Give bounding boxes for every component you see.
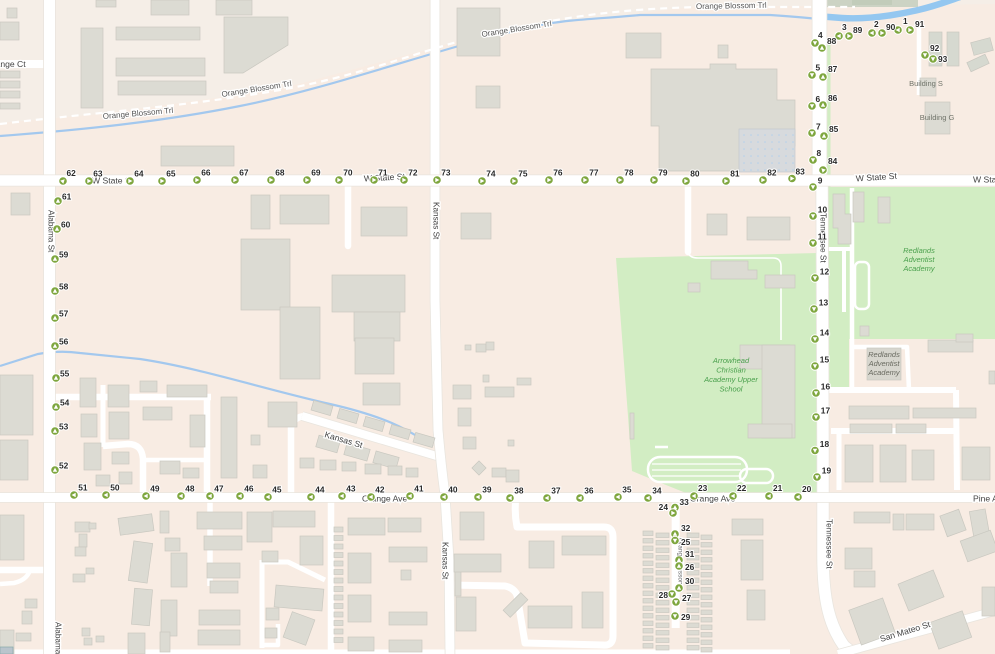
svg-text:92: 92 [930,43,940,53]
svg-text:63: 63 [93,169,103,179]
svg-text:77: 77 [589,168,599,178]
svg-text:42: 42 [375,485,385,495]
svg-text:24: 24 [659,502,669,512]
svg-text:57: 57 [59,309,69,319]
svg-text:44: 44 [315,485,325,495]
svg-text:72: 72 [408,168,418,178]
svg-text:46: 46 [244,484,254,494]
svg-text:86: 86 [828,93,838,103]
svg-text:79: 79 [658,168,668,178]
svg-text:47: 47 [214,484,224,494]
svg-text:Redlands: Redlands [868,350,900,359]
svg-text:54: 54 [60,398,70,408]
svg-text:82: 82 [767,168,777,178]
svg-text:20: 20 [802,484,812,494]
svg-text:83: 83 [796,167,806,177]
svg-text:39: 39 [482,485,492,495]
svg-text:52: 52 [59,461,69,471]
svg-text:25: 25 [681,537,691,547]
svg-text:58: 58 [59,282,69,292]
svg-text:71: 71 [378,168,388,178]
svg-text:45: 45 [272,485,282,495]
svg-text:22: 22 [737,483,747,493]
svg-text:Academy Upper: Academy Upper [703,375,758,384]
svg-text:Building S: Building S [909,79,943,88]
svg-text:91: 91 [915,19,925,29]
svg-text:80: 80 [690,169,700,179]
svg-text:37: 37 [551,486,561,496]
svg-text:69: 69 [311,168,321,178]
svg-text:2: 2 [874,19,879,29]
svg-text:18: 18 [820,439,830,449]
svg-text:3: 3 [842,22,847,32]
svg-text:73: 73 [441,168,451,178]
svg-text:64: 64 [134,169,144,179]
svg-text:93: 93 [938,54,948,64]
svg-text:70: 70 [343,168,353,178]
svg-text:Alabama St: Alabama St [54,622,63,654]
svg-text:84: 84 [828,156,838,166]
svg-text:1: 1 [903,16,908,26]
svg-text:19: 19 [822,466,832,476]
svg-text:66: 66 [201,168,211,178]
svg-text:65: 65 [166,169,176,179]
svg-text:9: 9 [818,176,823,186]
svg-text:36: 36 [584,486,594,496]
svg-text:Pine Ave: Pine Ave [973,494,995,504]
svg-text:Arrowhead: Arrowhead [712,356,750,365]
svg-text:34: 34 [652,486,662,496]
svg-text:Christian: Christian [716,366,746,375]
svg-text:53: 53 [59,422,69,432]
svg-text:29: 29 [681,612,691,622]
svg-text:Orange Ct: Orange Ct [0,59,26,69]
svg-text:Redlands: Redlands [903,246,935,255]
svg-text:16: 16 [821,382,831,392]
svg-text:17: 17 [821,406,831,416]
svg-text:85: 85 [829,124,839,134]
svg-text:4: 4 [818,30,823,40]
svg-text:56: 56 [59,337,69,347]
svg-text:89: 89 [853,25,863,35]
svg-text:35: 35 [622,485,632,495]
svg-text:76: 76 [553,168,563,178]
svg-text:Adventist: Adventist [868,359,901,368]
svg-text:41: 41 [414,484,424,494]
svg-text:10: 10 [818,205,828,215]
svg-text:81: 81 [730,169,740,179]
svg-text:11: 11 [818,232,827,242]
svg-text:43: 43 [346,484,356,494]
svg-text:90: 90 [886,22,896,32]
svg-text:87: 87 [828,64,838,74]
svg-text:Academy: Academy [867,368,901,377]
svg-text:7: 7 [816,122,821,132]
svg-text:48: 48 [185,484,195,494]
svg-text:30: 30 [685,576,695,586]
svg-text:School: School [720,385,743,394]
svg-text:61: 61 [62,192,72,202]
svg-text:88: 88 [827,36,837,46]
svg-text:78: 78 [624,168,634,178]
svg-text:59: 59 [59,250,69,260]
svg-text:Building G: Building G [920,113,955,122]
svg-text:31: 31 [685,549,695,559]
svg-text:Orange Blossom Trl: Orange Blossom Trl [696,1,767,11]
svg-text:62: 62 [67,168,77,178]
svg-text:32: 32 [681,523,691,533]
svg-text:23: 23 [698,483,708,493]
svg-text:Kansas St: Kansas St [432,202,441,240]
svg-text:49: 49 [150,484,160,494]
svg-text:51: 51 [78,483,88,493]
svg-text:Tennessee St: Tennessee St [825,519,834,569]
svg-text:21: 21 [773,483,783,493]
svg-text:55: 55 [60,369,70,379]
svg-text:74: 74 [486,169,496,179]
svg-text:68: 68 [275,168,285,178]
svg-text:33: 33 [680,497,690,507]
svg-text:40: 40 [448,485,458,495]
svg-text:38: 38 [514,486,524,496]
svg-text:27: 27 [682,593,692,603]
svg-text:75: 75 [518,169,528,179]
svg-text:60: 60 [61,220,71,230]
svg-text:14: 14 [820,328,830,338]
svg-text:26: 26 [685,562,695,572]
svg-text:13: 13 [819,298,829,308]
svg-text:Academy: Academy [902,264,936,273]
svg-text:15: 15 [820,355,830,365]
svg-text:6: 6 [816,94,821,104]
svg-text:28: 28 [659,590,669,600]
svg-text:5: 5 [816,63,821,73]
svg-text:Kansas St: Kansas St [441,542,450,580]
svg-text:50: 50 [110,483,120,493]
svg-text:12: 12 [820,267,830,277]
svg-text:W State St: W State St [973,175,995,185]
svg-text:8: 8 [817,148,822,158]
svg-text:67: 67 [239,168,249,178]
svg-text:Adventist: Adventist [903,255,936,264]
